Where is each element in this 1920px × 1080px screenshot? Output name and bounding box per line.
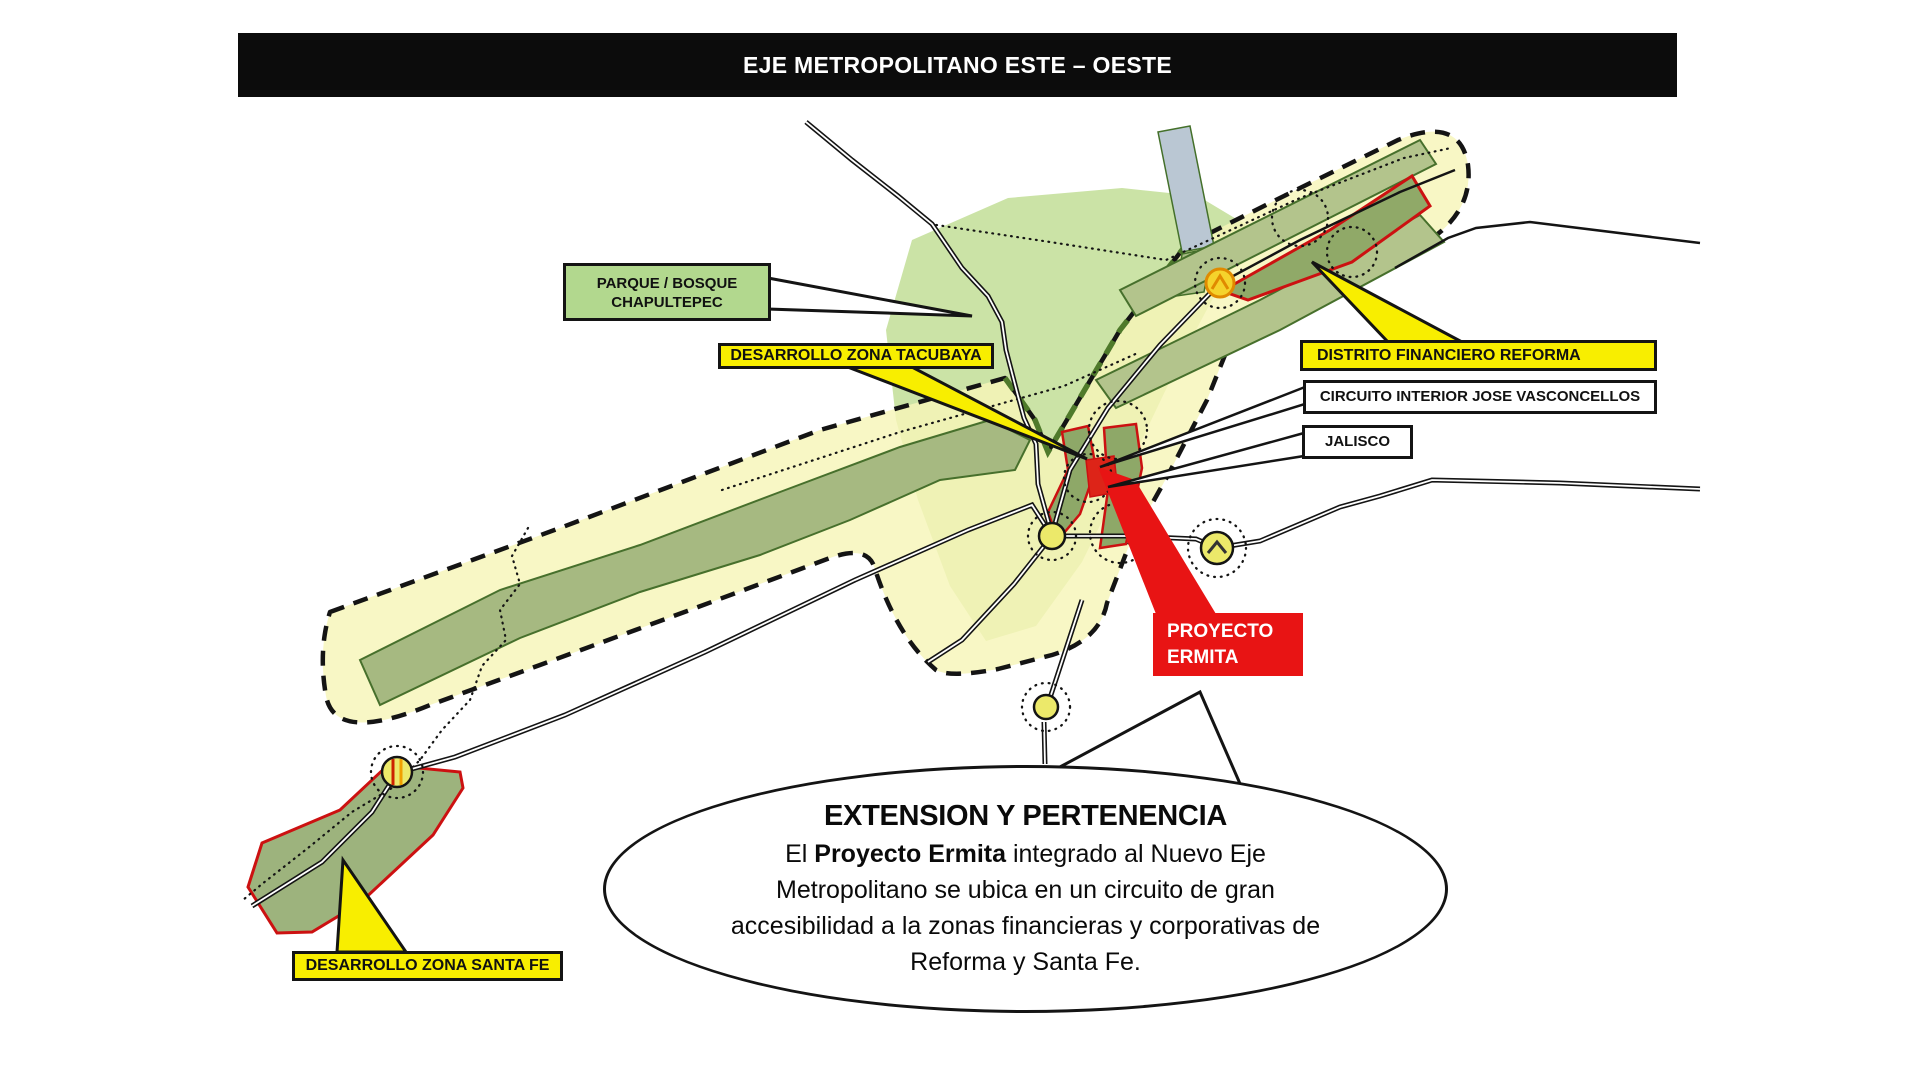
reforma-callout-pointer xyxy=(1312,262,1462,342)
label-line: PROYECTO xyxy=(1167,619,1303,645)
node-east xyxy=(1201,532,1233,564)
label-distrito-financiero-reforma: DISTRITO FINANCIERO REFORMA xyxy=(1300,340,1657,371)
label-line: ERMITA xyxy=(1167,645,1303,671)
bubble-title: EXTENSION Y PERTENENCIA xyxy=(606,800,1445,833)
label-proyecto-ermita: PROYECTO ERMITA xyxy=(1153,613,1303,676)
label-circuito-interior-jose-vasconcellos: CIRCUITO INTERIOR JOSE VASCONCELLOS xyxy=(1303,380,1657,414)
slide: EJE METROPOLITANO ESTE – OESTE xyxy=(0,0,1920,1080)
node-santa-fe xyxy=(382,757,412,787)
label-desarrollo-zona-tacubaya: DESARROLLO ZONA TACUBAYA xyxy=(718,343,994,369)
label-parque-bosque-chapultepec: PARQUE / BOSQUE CHAPULTEPEC xyxy=(563,263,771,321)
node-junction xyxy=(1039,523,1065,549)
extension-pertenencia-bubble: EXTENSION Y PERTENENCIA El Proyecto Ermi… xyxy=(603,765,1448,1013)
node-south xyxy=(1034,695,1058,719)
label-line: CHAPULTEPEC xyxy=(566,293,768,312)
bubble-body-bold: Proyecto Ermita xyxy=(814,840,1006,868)
bubble-body-prefix: El xyxy=(785,840,814,868)
label-line: PARQUE / BOSQUE xyxy=(566,274,768,293)
label-jalisco: JALISCO xyxy=(1302,425,1413,459)
label-desarrollo-zona-santa-fe: DESARROLLO ZONA SANTA FE xyxy=(292,951,563,981)
bubble-body: El Proyecto Ermita integrado al Nuevo Ej… xyxy=(726,836,1326,980)
